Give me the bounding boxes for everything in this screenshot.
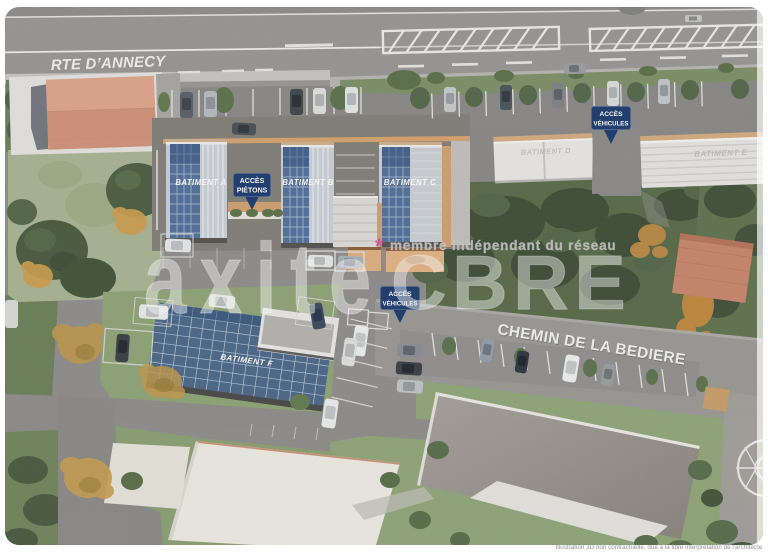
svg-text:Illustration 3D non contractue: Illustration 3D non contractuelle, due a… <box>556 544 763 551</box>
